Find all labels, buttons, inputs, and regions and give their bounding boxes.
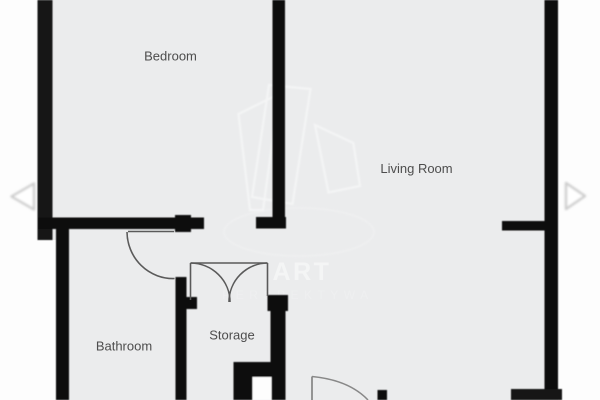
svg-text:ART: ART	[273, 258, 332, 286]
svg-text:Bathroom: Bathroom	[96, 339, 152, 354]
svg-text:Bedroom: Bedroom	[144, 49, 197, 64]
svg-text:Living Room: Living Room	[380, 161, 452, 176]
svg-text:Storage: Storage	[209, 328, 255, 343]
svg-text:PERSPEKTYWA: PERSPEKTYWA	[222, 288, 373, 302]
